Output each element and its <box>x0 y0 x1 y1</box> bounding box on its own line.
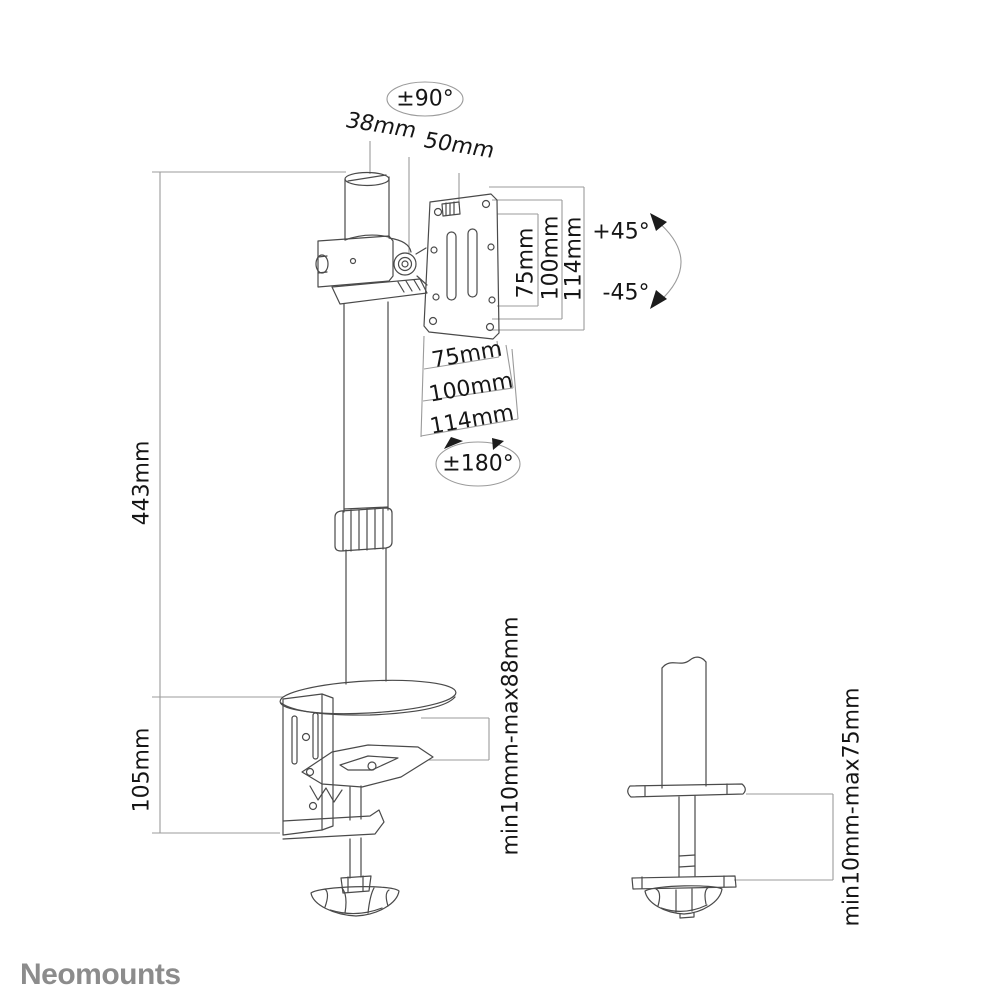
dimension-lines <box>152 82 833 880</box>
clamp-height-label: 105mm <box>130 728 155 813</box>
height-adjust-ring <box>335 508 392 551</box>
vesa-vertical-114-label: 114mm <box>562 217 587 302</box>
c-clamp <box>283 694 433 916</box>
swivel-left-arrow-icon <box>444 437 463 449</box>
vesa-vertical-75-label: 75mm <box>514 228 539 299</box>
swivel-label: ±180° <box>442 452 513 477</box>
grommet-knob <box>645 886 722 918</box>
tilt-up-label: +45° <box>592 220 649 245</box>
grommet-mount-figure <box>628 657 746 918</box>
vesa-plate <box>424 194 499 339</box>
grommet-thickness-range-label: min10mm-max75mm <box>840 687 865 926</box>
technical-drawing-page: ±90° 38mm 50mm +45° -45° 75mm 100mm 114m… <box>0 0 1004 1004</box>
swivel-right-arrow-icon <box>492 438 504 450</box>
brand-logo: Neomounts <box>20 958 181 992</box>
vesa-vertical-100-label: 100mm <box>539 216 564 301</box>
tilt-arc <box>657 221 681 302</box>
pole-rotation-label: ±90° <box>396 87 453 112</box>
tilt-down-label: -45° <box>603 281 650 306</box>
desk-clamp-mount-figure <box>279 173 499 917</box>
grommet-bottom-plate <box>632 876 736 889</box>
desk-plate <box>279 676 456 717</box>
tilt-down-arrow-icon <box>650 290 667 309</box>
pole-clamp-head <box>316 235 427 304</box>
grommet-top-plate <box>628 784 746 797</box>
pole-height-label: 443mm <box>130 441 155 526</box>
clamp-thickness-range-label: min10mm-max88mm <box>499 616 524 855</box>
